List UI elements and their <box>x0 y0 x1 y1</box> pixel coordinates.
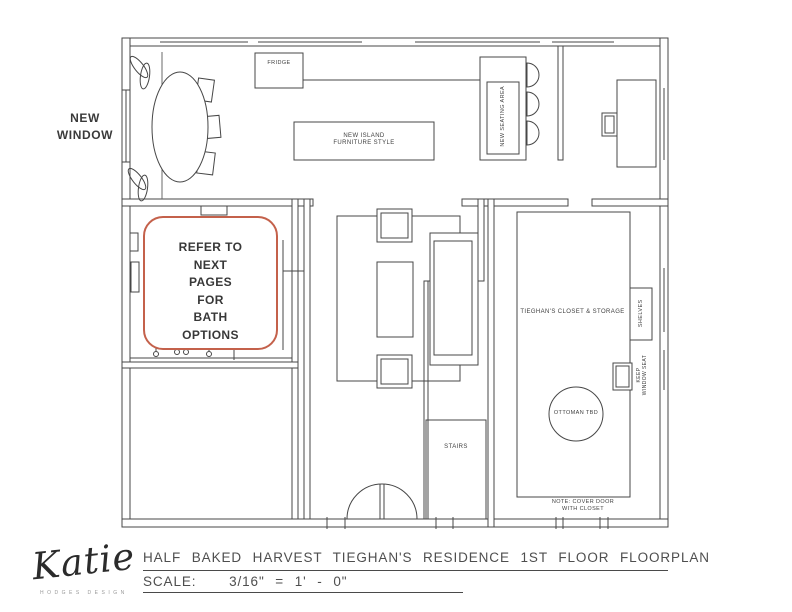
callout-line-5: BATH <box>145 309 276 327</box>
island-label-line2: FURNITURE STYLE <box>294 140 434 147</box>
callout-line-2: NEXT <box>145 257 276 275</box>
floorplan-drawing <box>0 0 792 612</box>
new-window-label: NEW WINDOW <box>50 110 120 144</box>
callout-line-6: OPTIONS <box>145 327 276 345</box>
scale-underline <box>143 592 463 593</box>
closet-note-line1: NOTE: COVER DOOR <box>543 499 623 506</box>
scale-row: SCALE: 3/16" = 1' - 0" <box>143 574 347 589</box>
designer-logo-subtext: HODGES DESIGN <box>40 590 128 596</box>
stairs-label: STAIRS <box>431 444 481 451</box>
callout-line-4: FOR <box>145 292 276 310</box>
callout-line-1: REFER TO <box>145 239 276 257</box>
fridge-label: FRIDGE <box>255 60 303 67</box>
callout-line-3: PAGES <box>145 274 276 292</box>
closet-note-line2: WITH CLOSET <box>543 506 623 513</box>
seating-counter <box>480 57 539 160</box>
window-seat-label-line2: WINDOW SEAT <box>642 351 648 399</box>
sheet-title: HALF BAKED HARVEST TIEGHAN'S RESIDENCE 1… <box>143 550 710 565</box>
dining-table <box>152 72 221 182</box>
bath-options-callout: REFER TO NEXT PAGES FOR BATH OPTIONS <box>143 216 278 350</box>
scale-value: 3/16" = 1' - 0" <box>229 574 347 589</box>
ottoman-label: OTTOMAN TBD <box>546 410 606 417</box>
fridge <box>255 53 303 88</box>
title-underline <box>143 570 668 571</box>
entry-doors <box>347 484 417 519</box>
floorplan-page: NEW WINDOW FRIDGE NEW ISLAND FURNITURE S… <box>0 0 792 612</box>
closet-room <box>517 212 652 497</box>
window-seat-label: KEEP WINDOW SEAT <box>636 351 648 399</box>
living-room-furniture <box>337 209 478 388</box>
shelves-label: SHELVES <box>638 288 645 338</box>
island-label-line1: NEW ISLAND <box>294 133 434 140</box>
closet-label: TIEGHAN'S CLOSET & STORAGE <box>505 309 640 316</box>
scale-label: SCALE: <box>143 574 196 589</box>
island-label: NEW ISLAND FURNITURE STYLE <box>294 133 434 147</box>
closet-note: NOTE: COVER DOOR WITH CLOSET <box>543 499 623 512</box>
seating-area-label: NEW SEATING AREA <box>500 76 507 156</box>
stairs-outline <box>426 420 486 519</box>
desk <box>602 80 656 167</box>
